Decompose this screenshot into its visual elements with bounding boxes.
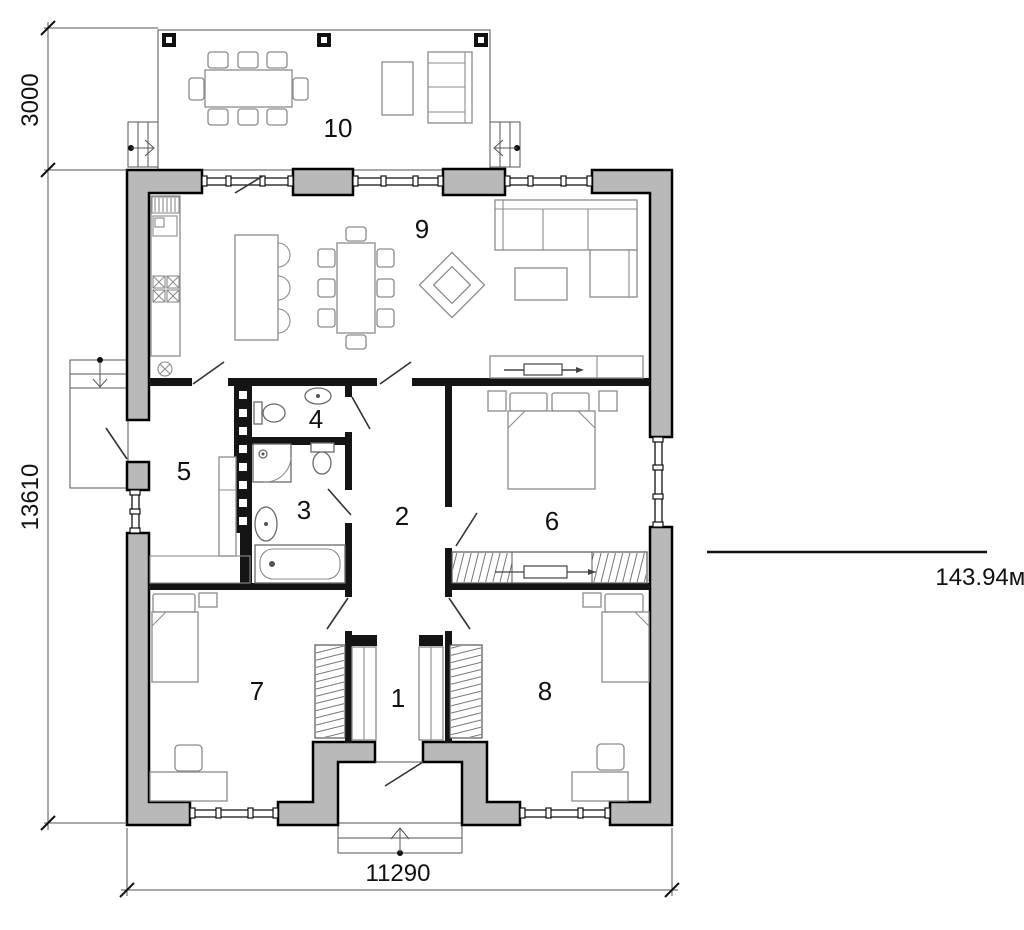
door-bedroom7 [327, 598, 348, 629]
shower-icon [253, 444, 291, 482]
door-side [106, 428, 127, 459]
toilet-icon [254, 402, 285, 424]
door-hall-kitchen [193, 362, 224, 384]
room-label-3: 3 [297, 495, 311, 525]
desk [572, 772, 628, 801]
kitchen-furniture [151, 196, 394, 376]
single-bed [583, 593, 649, 682]
window-bottom-right [520, 808, 610, 818]
room-label-2: 2 [395, 501, 409, 531]
sink-icon [255, 507, 277, 541]
desk [150, 772, 227, 801]
dimension-left-label: 13610 [17, 464, 44, 531]
dimension-top-label: 3000 [17, 73, 44, 126]
terrace-column-icon [162, 33, 488, 47]
chair [175, 745, 202, 771]
door-bathroom [328, 489, 351, 515]
nightstand [599, 391, 617, 411]
tv-icon [524, 364, 562, 375]
side-porch [70, 357, 128, 488]
wardrobe-bedroom6 [452, 552, 647, 583]
window-bottom-left [190, 808, 278, 818]
kitchen-island [235, 235, 290, 340]
area-label: 143.94м2 [935, 564, 1024, 591]
hall-wardrobe [219, 457, 236, 556]
window-right [653, 437, 663, 527]
windows [130, 176, 663, 818]
door-wc [352, 397, 370, 429]
terrace [128, 30, 520, 170]
vent-shaft [234, 386, 252, 533]
toilet-icon [311, 443, 334, 474]
chair [597, 744, 624, 770]
room-label-1: 1 [391, 683, 405, 713]
window-top-2 [353, 176, 443, 186]
terrace-dining-set [189, 52, 308, 125]
fan-icon [158, 362, 172, 376]
door-entrance [385, 762, 423, 786]
double-bed [508, 393, 595, 489]
room-label-4: 4 [309, 404, 323, 434]
room-label-7: 7 [250, 676, 264, 706]
floor-plan-page: 3000 13610 11290 143.94м2 1 2 3 4 5 6 7 … [0, 0, 1024, 930]
door-bedroom6 [456, 513, 477, 546]
room-label-10: 10 [324, 113, 353, 143]
nightstand [488, 391, 506, 411]
living-furniture [419, 200, 643, 378]
door-bedroom8 [449, 598, 470, 629]
dimension-bottom-label: 11290 [366, 860, 431, 887]
room-label-8: 8 [538, 676, 552, 706]
sink-icon [305, 388, 331, 404]
entry-porch [338, 823, 462, 856]
floor-plan-canvas: 3000 13610 11290 143.94м2 1 2 3 4 5 6 7 … [0, 0, 1024, 930]
window-top-3 [505, 176, 592, 186]
bedroom6-furniture [452, 391, 647, 583]
bathtub-icon [255, 545, 345, 583]
door-corridor-living [380, 362, 411, 384]
hall-furniture [150, 457, 250, 583]
room-label-9: 9 [415, 214, 429, 244]
terrace-lounge-set [382, 52, 472, 123]
terrace-stairs-right [490, 122, 520, 167]
room-label-5: 5 [177, 456, 191, 486]
armchair [419, 252, 484, 317]
dining-table-set [318, 227, 394, 349]
hall-sideboard [150, 556, 250, 583]
coffee-table [515, 268, 567, 300]
single-bed [152, 593, 217, 682]
window-left [130, 490, 140, 533]
tv-stand-living [490, 356, 643, 378]
area-annotation: 143.94м2 [707, 552, 1024, 591]
tv-icon [524, 566, 567, 578]
terrace-stairs-left [128, 122, 158, 167]
room-label-6: 6 [545, 506, 559, 536]
